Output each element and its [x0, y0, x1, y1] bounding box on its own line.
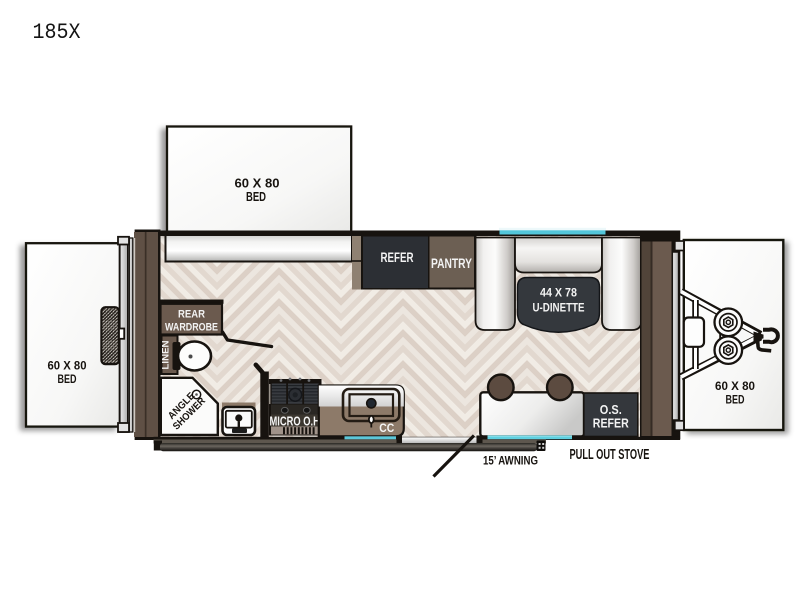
svg-text:WARDROBE: WARDROBE [165, 322, 218, 334]
svg-text:O.S.: O.S. [600, 403, 622, 417]
svg-text:BED: BED [726, 393, 745, 407]
svg-text:CC: CC [379, 421, 394, 435]
svg-text:PULL OUT STOVE: PULL OUT STOVE [570, 447, 650, 463]
svg-text:REFER: REFER [381, 250, 414, 265]
svg-text:LINEN: LINEN [160, 340, 171, 369]
svg-text:44 X 78: 44 X 78 [540, 288, 578, 300]
svg-text:MICRO O.H.: MICRO O.H. [270, 413, 323, 428]
svg-text:60 X 80: 60 X 80 [715, 379, 755, 393]
svg-text:PANTRY: PANTRY [431, 256, 472, 271]
svg-text:REFER: REFER [593, 417, 629, 431]
svg-text:185X: 185X [33, 19, 81, 45]
svg-text:REAR: REAR [178, 309, 205, 321]
svg-text:60 X 80: 60 X 80 [48, 359, 87, 373]
svg-text:15’ AWNING: 15’ AWNING [483, 456, 538, 468]
svg-text:60 X 80: 60 X 80 [235, 177, 280, 191]
svg-text:U-DINETTE: U-DINETTE [533, 303, 585, 315]
svg-text:BED: BED [246, 190, 266, 204]
svg-text:BED: BED [58, 372, 77, 386]
